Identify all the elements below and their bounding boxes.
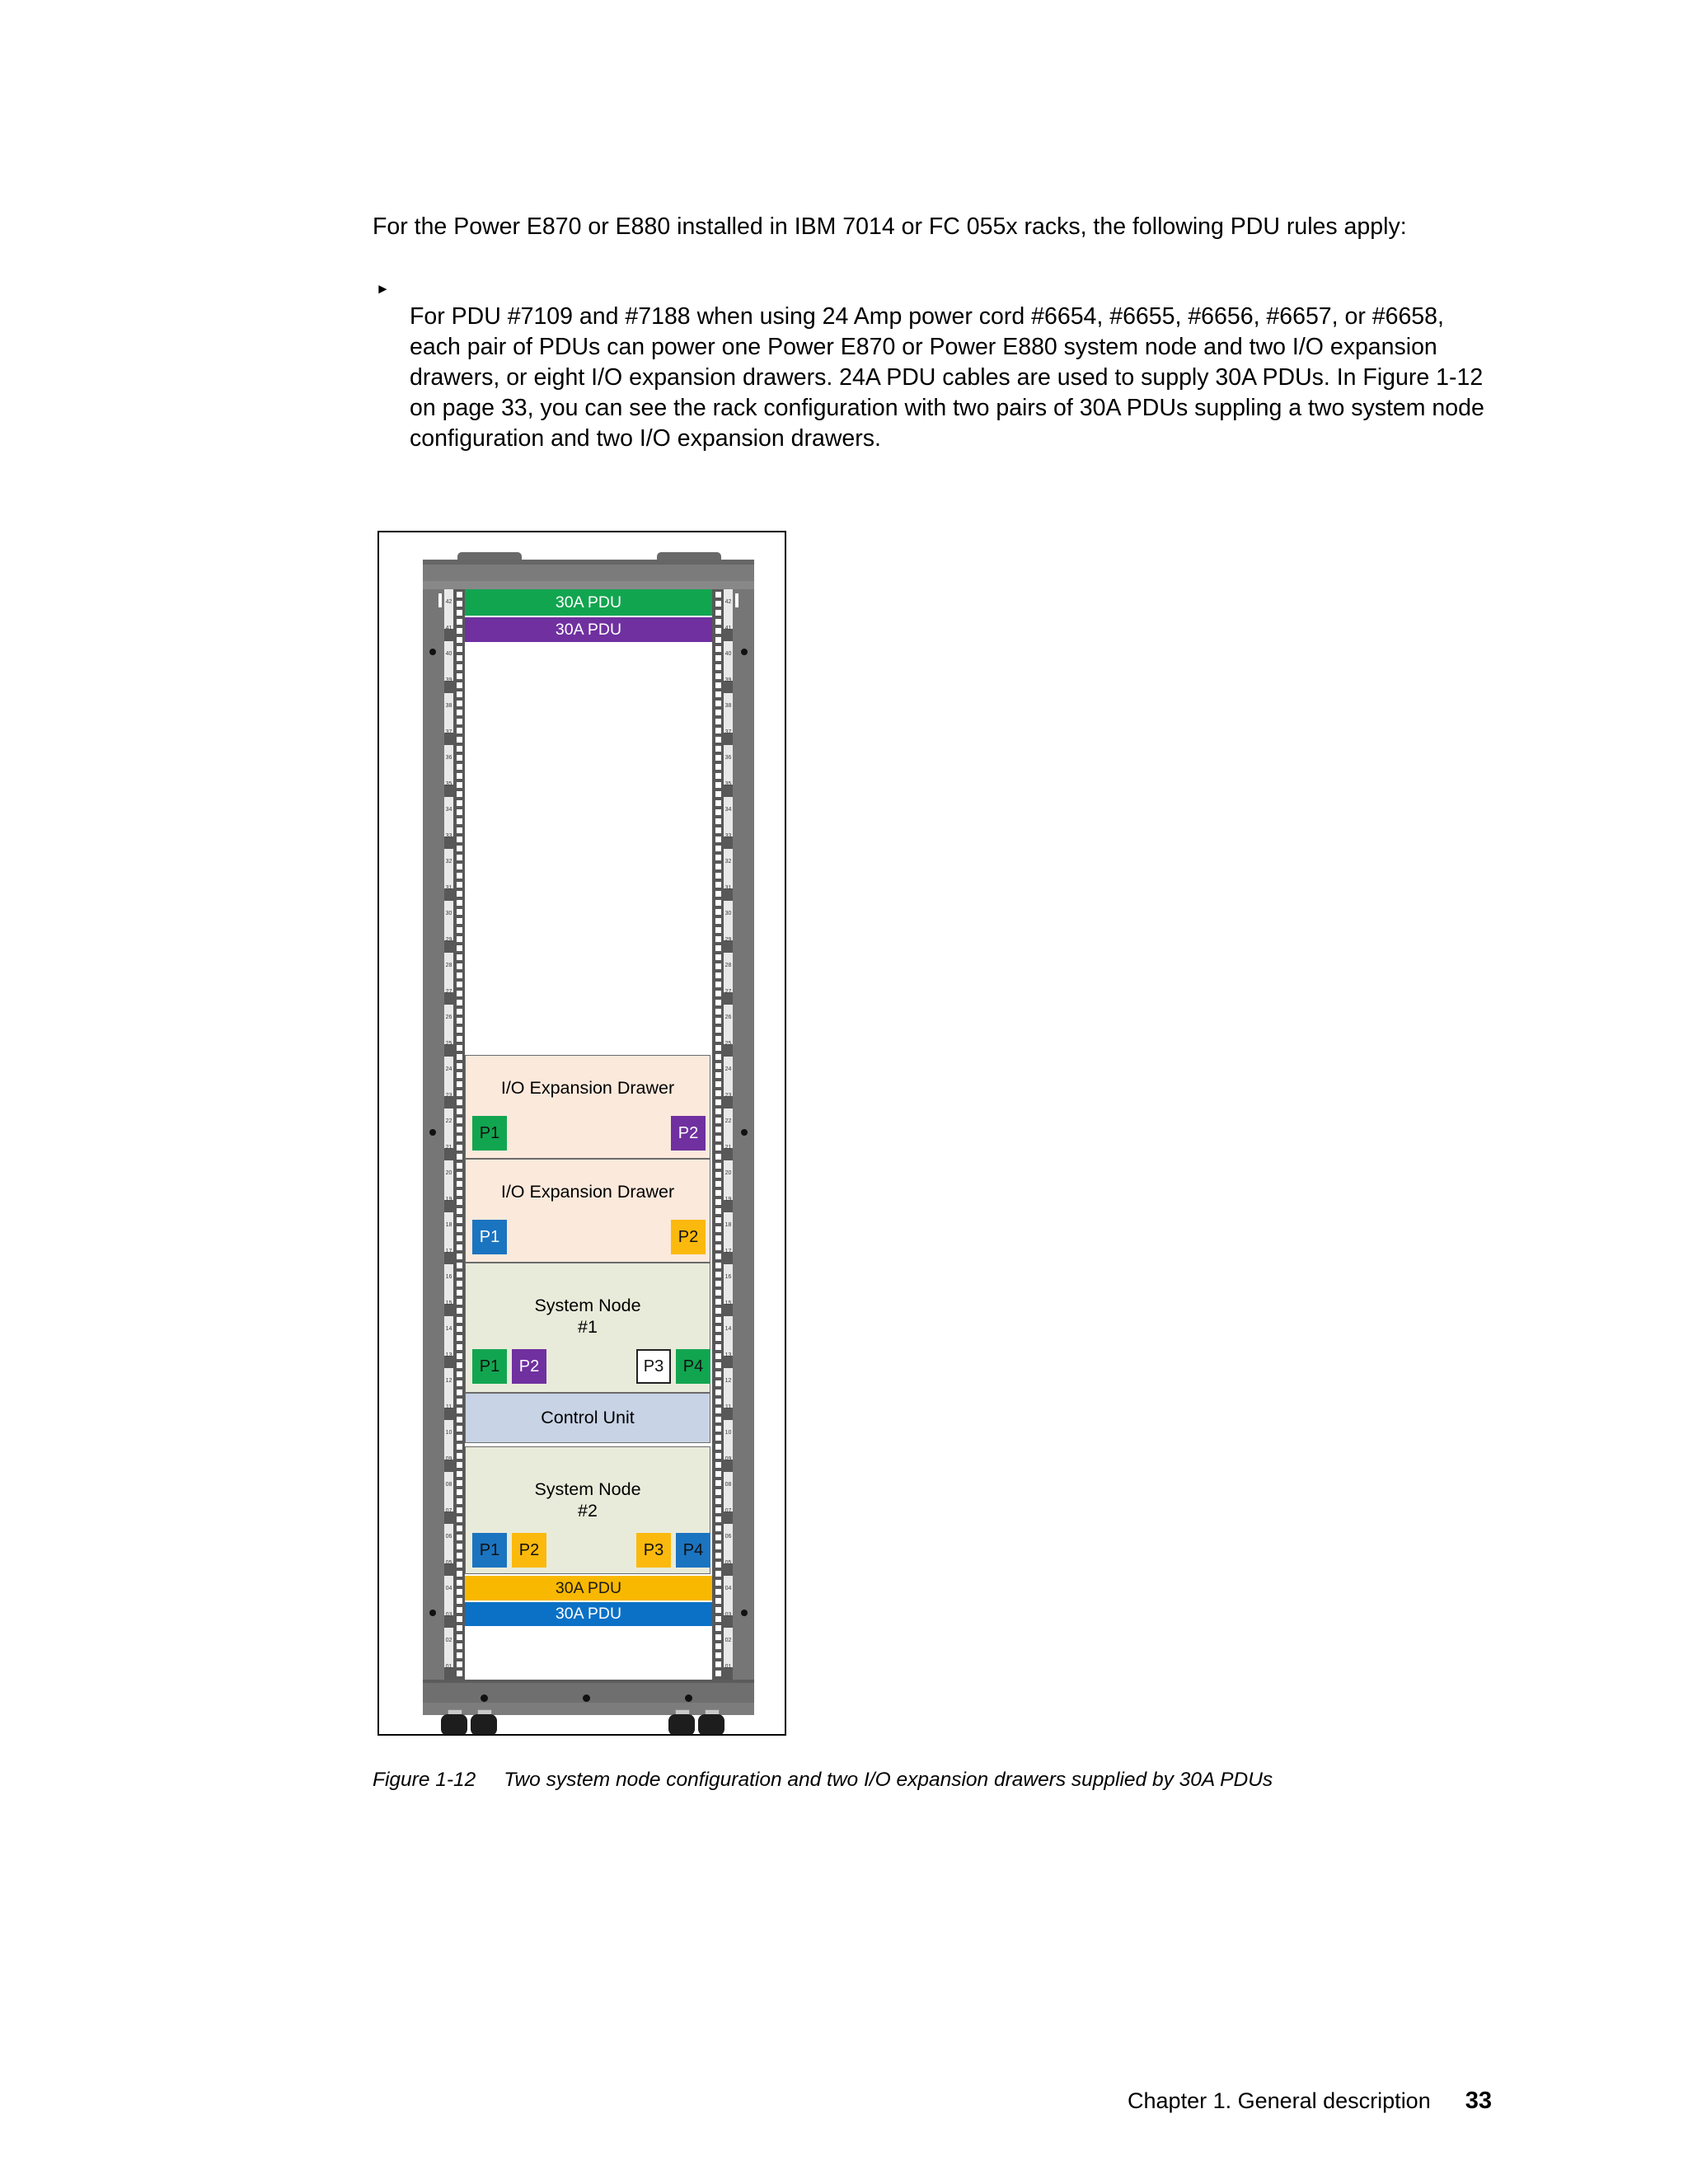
rail-unit-number: 15: [724, 1291, 733, 1317]
rail-unit-number: 36: [724, 745, 733, 771]
figure-caption-text: Two system node configuration and two I/…: [504, 1769, 1273, 1791]
rail-unit-number: 02: [724, 1628, 733, 1654]
rack-content-area: 30A PDU 30A PDU I/O Expansion Drawer P1 …: [465, 589, 712, 1680]
rail-unit-number: 22: [724, 1108, 733, 1135]
port-p4: P4: [676, 1349, 710, 1384]
screw-icon: [481, 1694, 488, 1702]
rail-unit-number: 15: [444, 1291, 453, 1317]
port-p2: P2: [512, 1533, 546, 1568]
rail-unit-number: 05: [724, 1550, 733, 1577]
footer-page-number: 33: [1465, 2088, 1492, 2114]
figure-caption: Figure 1-12Two system node configuration…: [373, 1769, 1273, 1792]
rail-unit-number: 07: [444, 1498, 453, 1525]
rail-unit-number: 13: [724, 1343, 733, 1369]
pdu-bar-bottom-2: 30A PDU: [465, 1602, 712, 1626]
rail-unit-number: 23: [724, 1083, 733, 1109]
rail-unit-number: 16: [444, 1264, 453, 1291]
rail-unit-numbers: 4241403938373635343332313029282726252423…: [444, 589, 453, 1680]
rail-unit-number: 03: [724, 1602, 733, 1629]
rail-unit-number: 02: [444, 1628, 453, 1654]
node-title: System Node #2: [466, 1479, 710, 1521]
rail-unit-number: 11: [724, 1394, 733, 1421]
screw-hole-icon: [741, 649, 748, 655]
rail-unit-number: 17: [724, 1239, 733, 1265]
screw-hole-icon: [429, 1129, 436, 1136]
system-node-2: System Node #2 P1 P2 P3 P4: [465, 1446, 710, 1574]
rack-top-cap: [423, 560, 754, 589]
port-p1: P1: [472, 1533, 507, 1568]
rail-unit-number: 10: [444, 1420, 453, 1446]
bullet-paragraph: For PDU #7109 and #7188 when using 24 Am…: [410, 302, 1499, 454]
rail-unit-number: 07: [724, 1498, 733, 1525]
rail-unit-number: 38: [444, 693, 453, 719]
rail-unit-number: 33: [444, 823, 453, 850]
screw-hole-icon: [429, 1610, 436, 1616]
rail-unit-number: 32: [444, 849, 453, 875]
pdu-bar-top-1: 30A PDU: [465, 589, 712, 616]
rail-unit-numbers: 4241403938373635343332313029282726252423…: [724, 589, 733, 1680]
port-p2: P2: [512, 1349, 546, 1384]
rack-notch: [735, 593, 738, 607]
rail-unit-number: 19: [444, 1187, 453, 1213]
rail-unit-number: 37: [724, 719, 733, 746]
rail-unit-number: 04: [444, 1576, 453, 1602]
rail-unit-number: 12: [444, 1368, 453, 1394]
rail-unit-number: 31: [724, 875, 733, 902]
rack-post-right: [733, 589, 754, 1680]
rail-unit-number: 23: [444, 1083, 453, 1109]
rack-notch: [438, 593, 442, 607]
rack-post-left: [423, 589, 444, 1680]
rail-unit-number: 16: [724, 1264, 733, 1291]
control-unit: Control Unit: [465, 1393, 710, 1443]
rail-unit-number: 36: [444, 745, 453, 771]
node-title-line: System Node: [534, 1479, 640, 1499]
rail-unit-number: 40: [444, 641, 453, 668]
caster-wheel: [441, 1714, 467, 1736]
rail-unit-number: 25: [444, 1031, 453, 1057]
port-p1: P1: [472, 1349, 507, 1384]
rail-unit-number: 35: [444, 771, 453, 798]
caster-wheel: [668, 1714, 695, 1736]
rail-unit-number: 41: [724, 616, 733, 642]
rail-unit-number: 10: [724, 1420, 733, 1446]
rack-rail-left: 4241403938373635343332313029282726252423…: [444, 589, 465, 1680]
rail-unit-number: 30: [724, 901, 733, 927]
rail-unit-number: 21: [724, 1135, 733, 1161]
rail-unit-number: 28: [724, 953, 733, 979]
rail-unit-number: 14: [444, 1316, 453, 1343]
rail-unit-number: 39: [444, 668, 453, 694]
rail-unit-number: 32: [724, 849, 733, 875]
port-p1: P1: [472, 1116, 507, 1151]
rail-unit-number: 19: [724, 1187, 733, 1213]
rail-unit-number: 29: [444, 927, 453, 954]
drawer-title: I/O Expansion Drawer: [466, 1181, 710, 1202]
rail-unit-number: 05: [444, 1550, 453, 1577]
rail-unit-number: 09: [444, 1446, 453, 1473]
rail-unit-number: 18: [444, 1212, 453, 1239]
pdu-bar-bottom-1: 30A PDU: [465, 1576, 712, 1601]
pdu-bar-top-2: 30A PDU: [465, 617, 712, 642]
rail-unit-number: 18: [724, 1212, 733, 1239]
rail-unit-number: 35: [724, 771, 733, 798]
rail-label-strip: 4241403938373635343332313029282726252423…: [724, 589, 733, 1680]
node-title-line: System Node: [534, 1296, 640, 1315]
rail-unit-number: 08: [724, 1472, 733, 1498]
rail-label-strip: 4241403938373635343332313029282726252423…: [444, 589, 453, 1680]
rail-mounting-holes: [453, 589, 465, 1680]
rail-unit-number: 41: [444, 616, 453, 642]
rail-unit-number: 20: [444, 1160, 453, 1187]
caster-wheel: [698, 1714, 724, 1736]
port-p2: P2: [671, 1220, 706, 1254]
rail-mounting-holes: [712, 589, 724, 1680]
port-p3: P3: [636, 1533, 671, 1568]
screw-icon: [583, 1694, 590, 1702]
rail-unit-number: 13: [444, 1343, 453, 1369]
port-p1: P1: [472, 1220, 507, 1254]
rail-unit-number: 11: [444, 1394, 453, 1421]
rail-unit-number: 27: [444, 979, 453, 1005]
rail-unit-number: 42: [724, 589, 733, 616]
rail-unit-number: 01: [444, 1654, 453, 1680]
rail-unit-number: 37: [444, 719, 453, 746]
footer-chapter-title: Chapter 1. General description: [1128, 2088, 1431, 2113]
port-p4: P4: [676, 1533, 710, 1568]
rail-unit-number: 14: [724, 1316, 733, 1343]
system-node-1: System Node #1 P1 P2 P3 P4: [465, 1263, 710, 1393]
drawer-title: I/O Expansion Drawer: [466, 1077, 710, 1099]
rail-unit-number: 40: [724, 641, 733, 668]
rail-unit-number: 24: [724, 1057, 733, 1083]
screw-hole-icon: [741, 1129, 748, 1136]
intro-paragraph: For the Power E870 or E880 installed in …: [373, 212, 1503, 242]
port-p3: P3: [636, 1349, 671, 1384]
rail-unit-number: 22: [444, 1108, 453, 1135]
rail-unit-number: 31: [444, 875, 453, 902]
rail-unit-number: 21: [444, 1135, 453, 1161]
rail-unit-number: 39: [724, 668, 733, 694]
rail-unit-number: 26: [444, 1005, 453, 1031]
rail-unit-number: 04: [724, 1576, 733, 1602]
port-p2: P2: [671, 1116, 706, 1151]
rail-unit-number: 17: [444, 1239, 453, 1265]
screw-hole-icon: [429, 649, 436, 655]
rail-unit-number: 34: [444, 797, 453, 823]
rail-unit-number: 33: [724, 823, 733, 850]
page-footer: Chapter 1. General description33: [1128, 2088, 1492, 2115]
io-expansion-drawer-1: I/O Expansion Drawer P1 P2: [465, 1055, 710, 1159]
rail-unit-number: 24: [444, 1057, 453, 1083]
bullet-marker-icon: ►: [376, 281, 390, 298]
node-title: System Node #1: [466, 1295, 710, 1338]
rail-unit-number: 06: [724, 1524, 733, 1550]
rail-unit-number: 09: [724, 1446, 733, 1473]
rail-unit-number: 38: [724, 693, 733, 719]
rail-unit-number: 29: [724, 927, 733, 954]
node-subtitle: #1: [578, 1317, 598, 1337]
rail-unit-number: 01: [724, 1654, 733, 1680]
figure-caption-label: Figure 1-12: [373, 1769, 476, 1791]
node-subtitle: #2: [578, 1501, 598, 1521]
rail-unit-number: 27: [724, 979, 733, 1005]
figure-1-12: 4241403938373635343332313029282726252423…: [377, 531, 786, 1736]
rail-unit-number: 06: [444, 1524, 453, 1550]
screw-icon: [685, 1694, 692, 1702]
rail-unit-number: 12: [724, 1368, 733, 1394]
screw-hole-icon: [741, 1610, 748, 1616]
rack-diagram: 4241403938373635343332313029282726252423…: [423, 552, 754, 1734]
rail-unit-number: 08: [444, 1472, 453, 1498]
rail-unit-number: 20: [724, 1160, 733, 1187]
caster-wheel: [471, 1714, 497, 1736]
rail-unit-number: 28: [444, 953, 453, 979]
rail-unit-number: 25: [724, 1031, 733, 1057]
rack-rail-right: 4241403938373635343332313029282726252423…: [712, 589, 733, 1680]
io-expansion-drawer-2: I/O Expansion Drawer P1 P2: [465, 1159, 710, 1263]
rail-unit-number: 30: [444, 901, 453, 927]
rail-unit-number: 26: [724, 1005, 733, 1031]
rail-unit-number: 03: [444, 1602, 453, 1629]
rail-unit-number: 34: [724, 797, 733, 823]
rail-unit-number: 42: [444, 589, 453, 616]
